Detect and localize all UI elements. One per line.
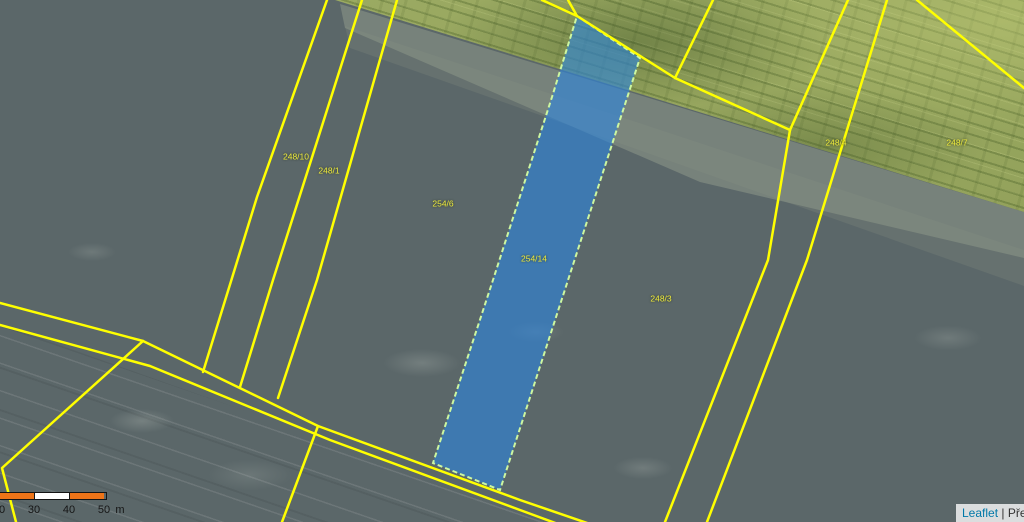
parcel-boundary-line	[675, 78, 790, 130]
attribution: Leaflet | Pře	[956, 504, 1024, 522]
scale-unit-label: m	[115, 504, 124, 516]
parcel-boundary-line	[707, 0, 887, 522]
parcel-label-highlighted: 254/14	[521, 255, 547, 264]
parcel-label: 254/6	[432, 200, 453, 209]
parcel-label: 248/7	[946, 139, 967, 148]
parcel-boundary-line	[675, 0, 713, 78]
parcel-label: 248/3	[650, 295, 671, 304]
map-canvas[interactable]: 248/10 248/1 254/6 254/14 248/3 248/4 24…	[0, 0, 1024, 522]
parcel-boundary-line	[203, 0, 327, 372]
scale-segment-orange	[0, 493, 34, 499]
parcel-label: 248/4	[825, 139, 846, 148]
scale-tick-label: 40	[63, 504, 75, 516]
scale-tick-label: 50	[98, 504, 110, 516]
parcel-boundary-line	[282, 426, 318, 522]
parcel-boundary-line	[278, 0, 397, 398]
scale-segment-white	[34, 493, 69, 499]
parcel-label: 248/10	[283, 153, 309, 162]
parcel-boundary-line	[917, 0, 1024, 88]
leaflet-link[interactable]: Leaflet	[962, 506, 998, 520]
parcel-overlay	[0, 0, 1024, 522]
scale-segment-orange	[69, 493, 104, 499]
attribution-text: Pře	[1008, 506, 1024, 520]
parcel-boundary-line	[790, 0, 848, 130]
parcel-boundary-line	[665, 130, 790, 522]
parcel-label: 248/1	[318, 167, 339, 176]
scale-tick-label: 30	[28, 504, 40, 516]
attribution-separator: |	[1001, 506, 1004, 520]
scale-bar	[0, 492, 107, 500]
scale-tick-label: 20	[0, 504, 5, 516]
